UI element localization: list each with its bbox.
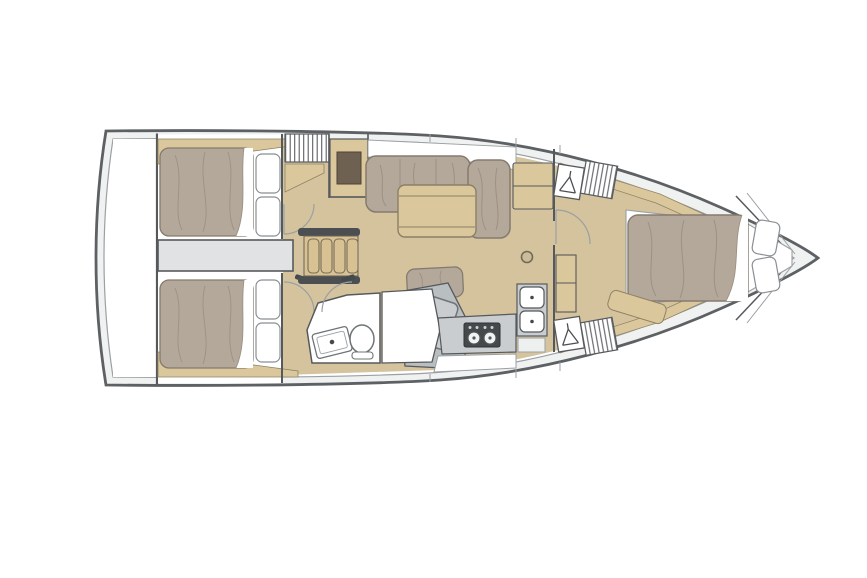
stove <box>464 323 500 347</box>
louvered-locker <box>580 317 617 355</box>
cabinet-inset <box>337 152 361 184</box>
yacht-floor-plan <box>0 0 867 578</box>
engine-compartment <box>158 240 293 271</box>
transom-area <box>113 139 157 377</box>
pillow <box>751 256 781 294</box>
louver-hatching <box>285 134 329 162</box>
floor-plan-canvas <box>0 0 867 578</box>
step <box>347 239 358 273</box>
cabinet <box>556 255 576 312</box>
aft-port-berth-duvet <box>160 148 253 236</box>
pillow <box>256 323 280 362</box>
double-sink <box>517 284 547 336</box>
step <box>308 239 319 273</box>
forward-berth-duvet <box>628 215 748 301</box>
aft-starboard-berth-duvet <box>160 280 253 368</box>
louver-hatching <box>580 161 617 199</box>
hanging-locker <box>554 164 585 200</box>
toilet <box>350 325 374 353</box>
shower-stall <box>382 289 440 363</box>
pillow <box>256 154 280 193</box>
pillow <box>256 197 280 236</box>
handrail <box>298 228 360 236</box>
hanging-locker <box>554 316 585 352</box>
step <box>334 239 345 273</box>
step <box>321 239 332 273</box>
louvered-locker <box>580 161 617 199</box>
transom-platform <box>113 134 157 385</box>
pillow <box>256 280 280 319</box>
louver-hatching <box>580 317 617 355</box>
table-pedestal-mount <box>522 252 533 263</box>
toilet-base <box>352 352 373 359</box>
cutting-board <box>518 338 545 352</box>
pillow <box>751 219 781 257</box>
saloon-table <box>398 185 476 237</box>
